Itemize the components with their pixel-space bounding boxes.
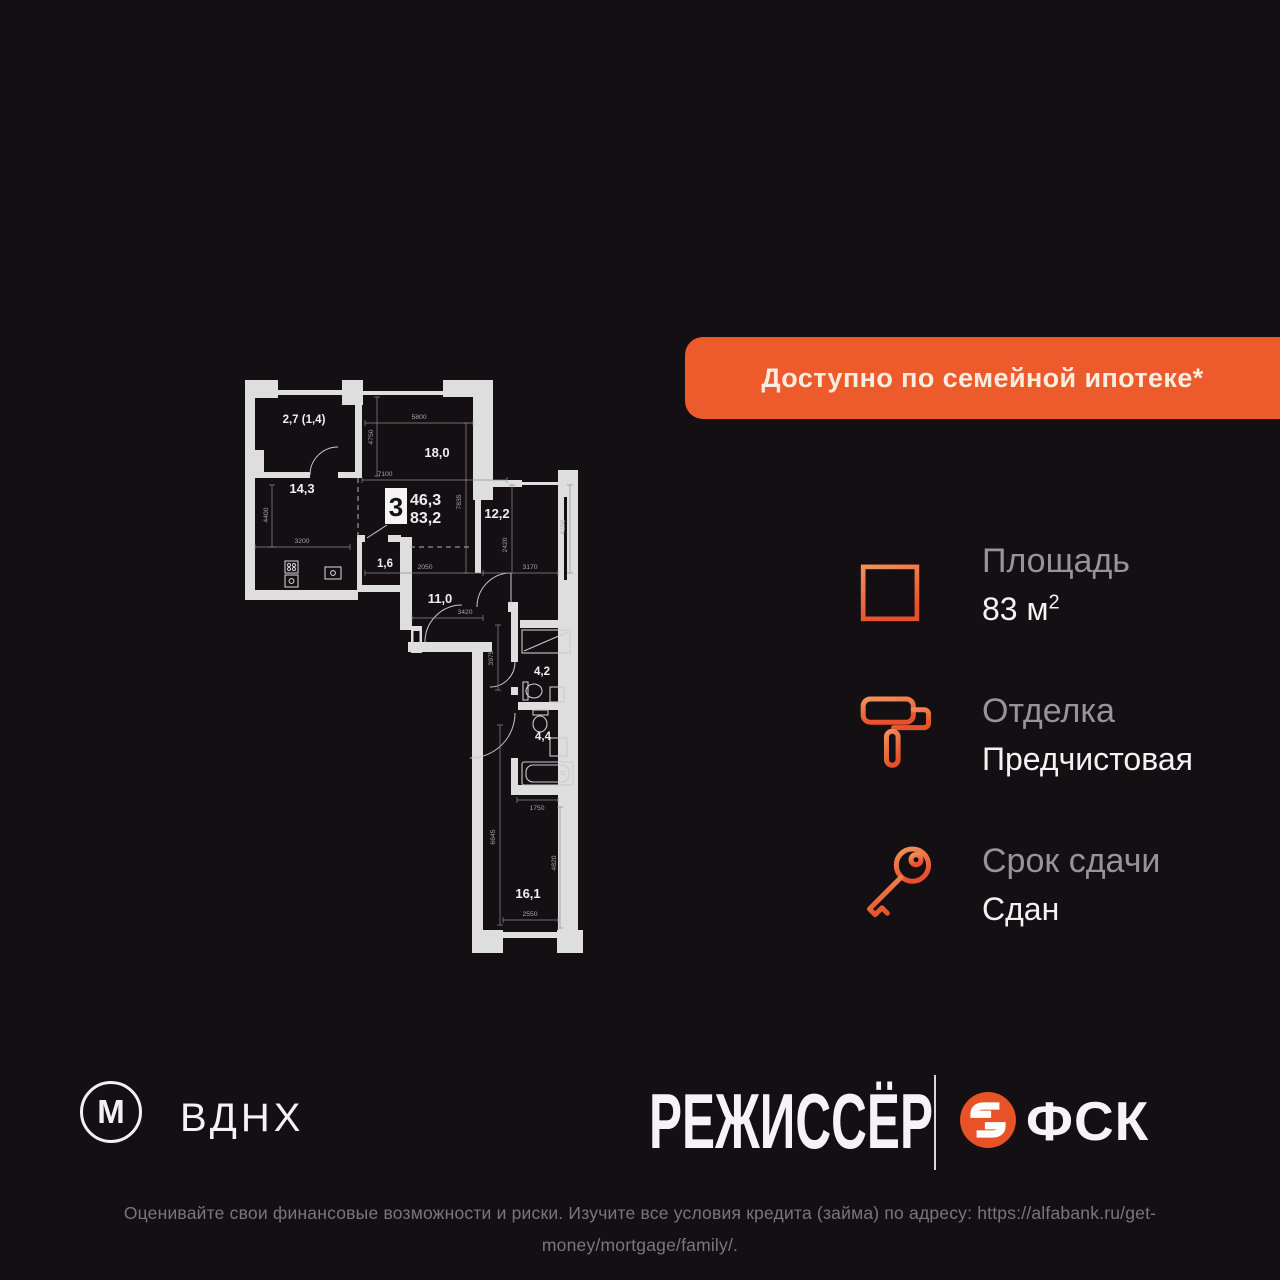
floor-plan: 5800 4750 7100 7835 4400 3200 2050 3170 … <box>245 375 590 955</box>
rooms-count: 3 <box>389 492 403 522</box>
dimension-label: 3975 <box>488 650 495 665</box>
dimension-label: 1750 <box>529 805 544 812</box>
dimension-label: 4820 <box>551 855 558 870</box>
area-icon <box>856 540 942 626</box>
dimension-label: 4750 <box>368 429 375 444</box>
finish-label: Отделка <box>982 692 1193 731</box>
paint-roller-icon <box>856 690 942 776</box>
dimension-label: 2550 <box>522 911 537 918</box>
room-label-12-2: 12,2 <box>484 506 509 521</box>
living-area: 46,3 <box>410 492 441 509</box>
toilet-icon <box>533 710 548 715</box>
family-mortgage-banner: Доступно по семейной ипотеке* <box>685 337 1280 419</box>
room-label-balcony: 2,7 (1,4) <box>283 414 326 426</box>
area-label: Площадь <box>982 542 1130 581</box>
info-item-area: Площадь 83 м2 <box>856 540 1130 628</box>
banner-label: Доступно по семейной ипотеке* <box>761 363 1203 394</box>
dimension-label: 2420 <box>502 537 509 552</box>
fsk-logo-text: ФСК <box>1026 1089 1149 1153</box>
metro-icon: М <box>80 1081 142 1143</box>
room-label-4-4: 4,4 <box>535 731 552 743</box>
logo-divider <box>934 1075 936 1170</box>
sink-icon <box>285 575 298 587</box>
plan-walls <box>245 380 583 953</box>
room-label-4-2: 4,2 <box>534 666 550 678</box>
fsk-logo-icon <box>959 1091 1017 1149</box>
kitchen-sink-icon <box>325 567 341 579</box>
dimension-label: 6645 <box>490 829 497 844</box>
area-value: 83 м2 <box>982 591 1130 628</box>
dimension-label: 3200 <box>294 538 309 545</box>
deadline-label: Срок сдачи <box>982 842 1160 881</box>
dimension-label: 4400 <box>263 507 270 522</box>
key-icon <box>856 840 942 926</box>
room-label-11-0: 11,0 <box>428 591 453 606</box>
room-label-16-1: 16,1 <box>515 886 540 901</box>
deadline-value: Сдан <box>982 891 1160 928</box>
dimension-label: 4150 <box>560 519 567 534</box>
dimension-label: 5800 <box>411 414 426 421</box>
dimension-label: 2050 <box>417 564 432 571</box>
finish-value: Предчистовая <box>982 741 1193 778</box>
metro-station-name: ВДНХ <box>180 1096 304 1141</box>
room-label-14-3: 14,3 <box>289 481 314 496</box>
dimension-label: 3420 <box>457 609 472 616</box>
stove-icon <box>285 561 298 573</box>
dimension-label: 3170 <box>522 564 537 571</box>
room-label-1-6: 1,6 <box>377 558 393 570</box>
unit-badge: 3 46,3 83,2 <box>385 488 441 527</box>
dimension-label: 7100 <box>377 471 392 478</box>
total-area: 83,2 <box>410 510 441 527</box>
dimension-label: 7835 <box>456 494 463 509</box>
room-label-18-0: 18,0 <box>424 445 449 460</box>
info-item-finish: Отделка Предчистовая <box>856 690 1193 778</box>
developer-logo: РЕЖИССЁР <box>649 1076 933 1167</box>
legal-disclaimer: Оценивайте свои финансовые возможности и… <box>55 1198 1225 1261</box>
info-item-deadline: Срок сдачи Сдан <box>856 840 1160 928</box>
